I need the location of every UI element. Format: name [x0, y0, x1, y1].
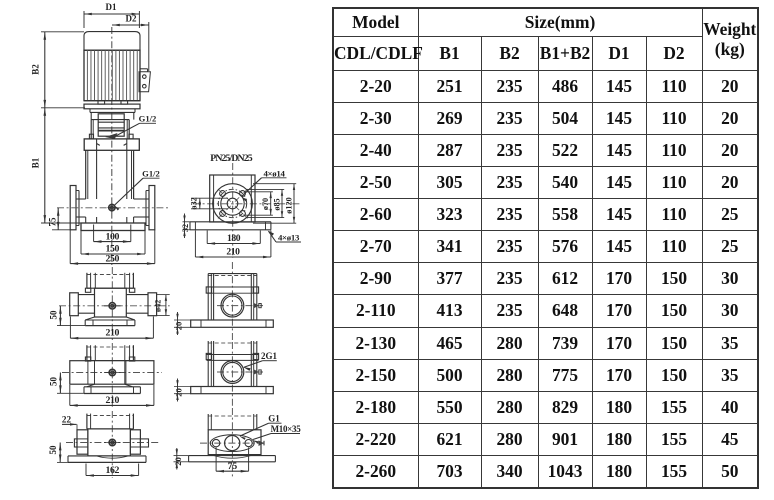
svg-text:ø85: ø85 — [272, 198, 281, 210]
svg-text:50: 50 — [48, 445, 58, 455]
svg-text:250: 250 — [106, 253, 120, 264]
svg-text:22: 22 — [62, 414, 72, 424]
svg-text:M10×35: M10×35 — [271, 424, 302, 434]
svg-text:2G1: 2G1 — [261, 351, 278, 361]
svg-text:ø120: ø120 — [285, 197, 294, 213]
svg-text:B1: B1 — [31, 157, 41, 168]
svg-text:D2: D2 — [126, 14, 137, 24]
svg-text:ø70: ø70 — [261, 198, 270, 210]
svg-text:75: 75 — [228, 461, 238, 472]
svg-text:ø32: ø32 — [189, 197, 198, 209]
svg-text:20: 20 — [174, 388, 184, 397]
svg-text:B2: B2 — [31, 64, 41, 75]
svg-text:100: 100 — [106, 231, 120, 242]
svg-text:210: 210 — [106, 395, 120, 406]
svg-text:G1/2: G1/2 — [142, 169, 160, 179]
svg-text:D1: D1 — [106, 2, 117, 12]
svg-text:180: 180 — [227, 233, 241, 244]
svg-text:32: 32 — [181, 224, 190, 232]
svg-text:210: 210 — [226, 247, 240, 258]
svg-text:20: 20 — [174, 322, 184, 331]
svg-text:210: 210 — [106, 328, 120, 339]
svg-text:162: 162 — [106, 465, 120, 476]
svg-text:50: 50 — [49, 310, 59, 320]
svg-text:4×ø13: 4×ø13 — [278, 233, 300, 243]
svg-text:75: 75 — [48, 217, 58, 227]
svg-text:PN25/DN25: PN25/DN25 — [210, 153, 252, 164]
svg-text:G1: G1 — [268, 414, 280, 424]
svg-text:ø42: ø42 — [154, 300, 163, 312]
svg-text:50: 50 — [49, 377, 59, 387]
svg-text:4×ø14: 4×ø14 — [263, 168, 285, 178]
svg-text:G1/2: G1/2 — [139, 114, 157, 124]
